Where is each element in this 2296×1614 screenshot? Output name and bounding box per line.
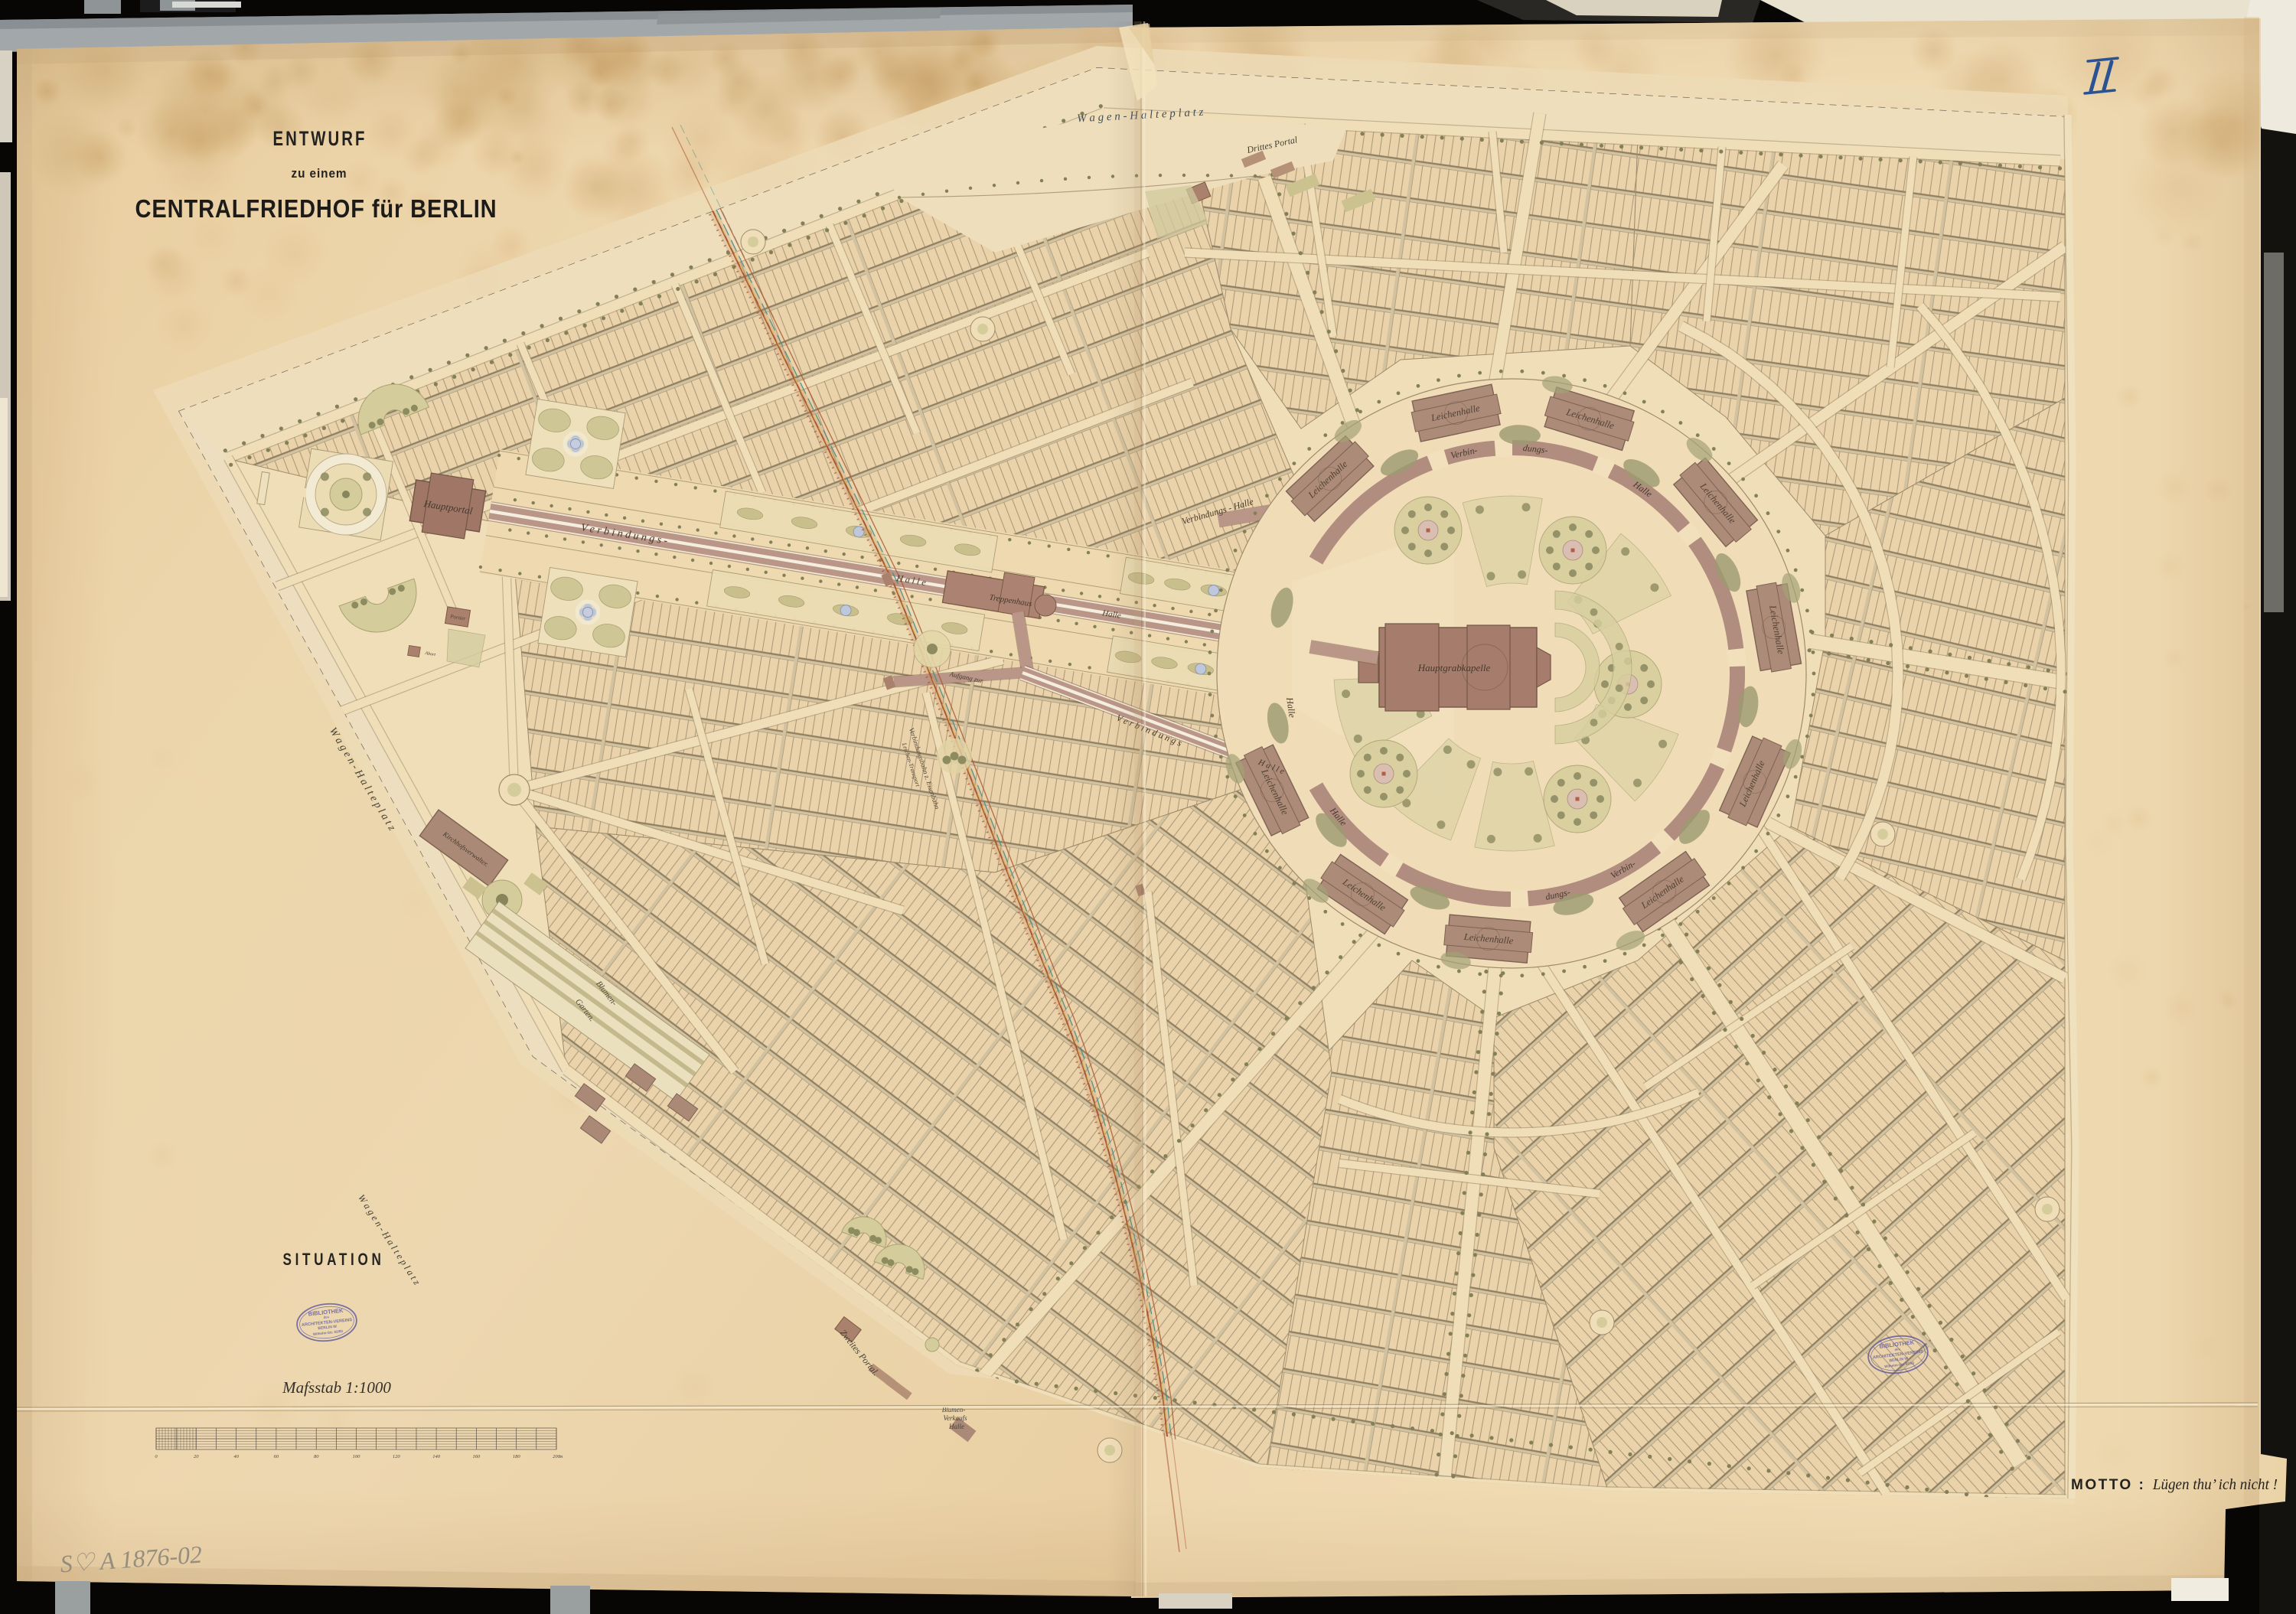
svg-text:MOTTO : Lügen thu’ ich nicht !: MOTTO : Lügen thu’ ich nicht !: [2071, 1476, 2278, 1493]
svg-text:des: des: [1894, 1347, 1900, 1352]
svg-text:m: m: [559, 1454, 563, 1459]
svg-text:Mafsstab 1:1000: Mafsstab 1:1000: [282, 1378, 391, 1397]
svg-text:160: 160: [473, 1454, 481, 1459]
svg-text:120: 120: [393, 1454, 401, 1459]
svg-text:zu einem: zu einem: [292, 166, 347, 181]
svg-text:CENTRALFRIEDHOF für BERLIN: CENTRALFRIEDHOF für BERLIN: [135, 194, 497, 223]
svg-text:180: 180: [513, 1454, 521, 1459]
svg-text:ENTWURF: ENTWURF: [273, 127, 367, 150]
svg-text:60: 60: [274, 1454, 279, 1459]
svg-text:des: des: [323, 1315, 329, 1319]
svg-text:80: 80: [314, 1454, 319, 1459]
svg-text:20: 20: [194, 1454, 199, 1459]
svg-text:140: 140: [432, 1454, 441, 1459]
svg-text:100: 100: [353, 1454, 361, 1459]
svg-text:40: 40: [233, 1454, 239, 1459]
svg-text:SITUATION: SITUATION: [283, 1250, 385, 1269]
